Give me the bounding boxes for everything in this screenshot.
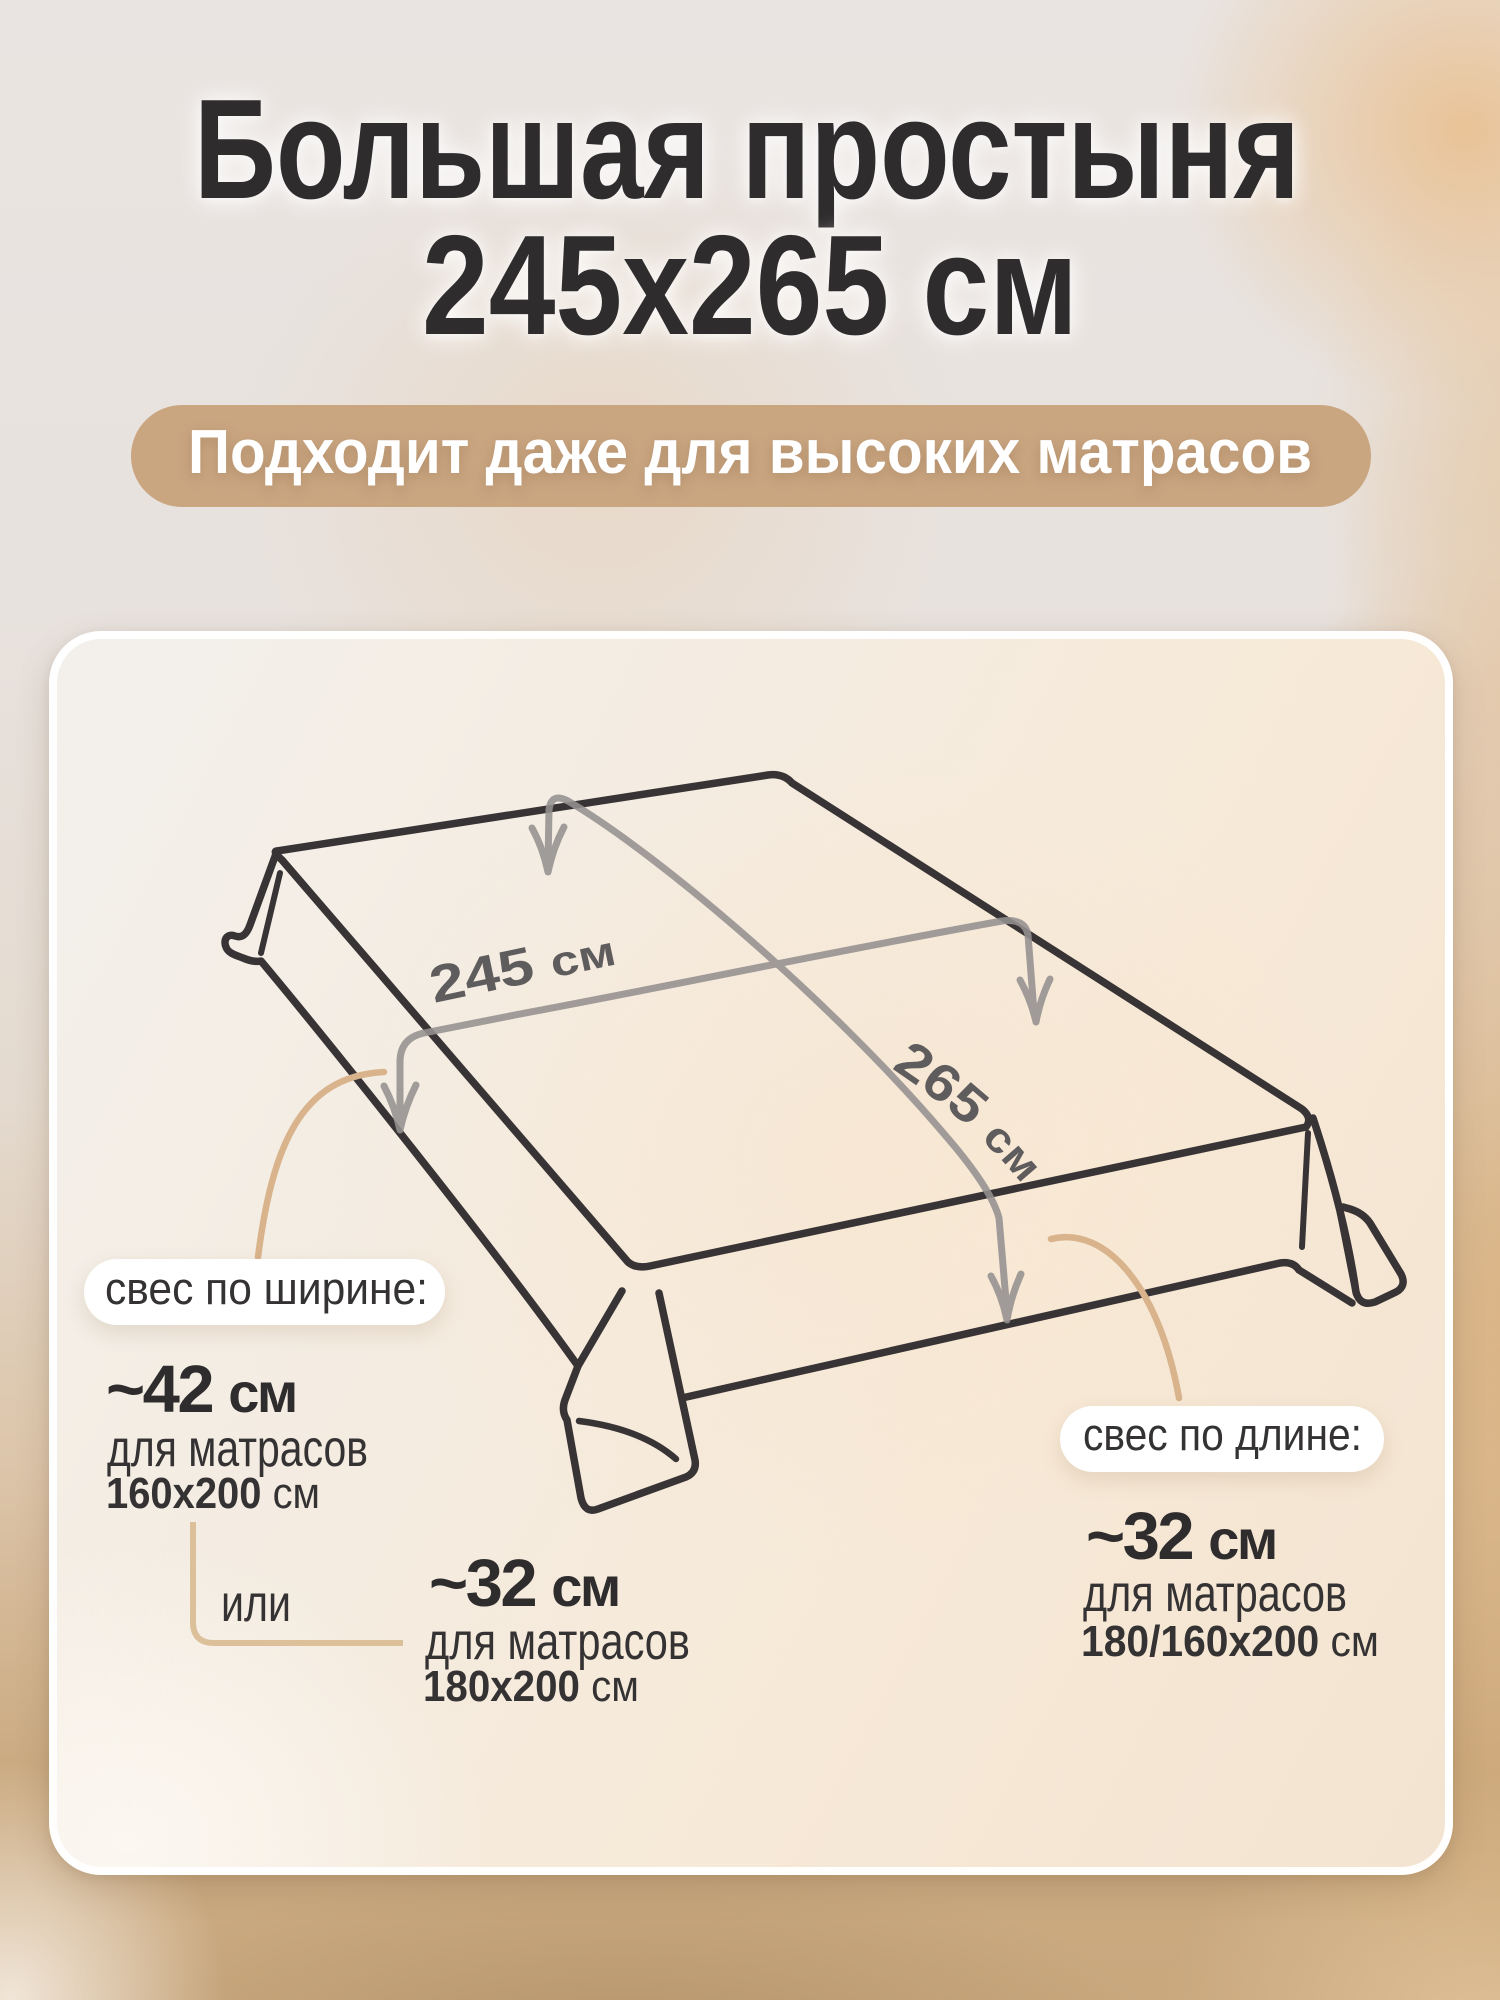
svg-text:или: или: [221, 1575, 291, 1633]
svg-text:для матрасов: для матрасов: [1083, 1565, 1347, 1623]
svg-text:180х200 см: 180х200 см: [423, 1662, 639, 1711]
svg-text:свес по ширине:: свес по ширине:: [105, 1263, 428, 1314]
svg-text:свес по длине:: свес по длине:: [1083, 1409, 1362, 1460]
svg-text:160х200 см: 160х200 см: [106, 1469, 320, 1518]
svg-text:180/160х200 см: 180/160х200 см: [1081, 1617, 1379, 1666]
